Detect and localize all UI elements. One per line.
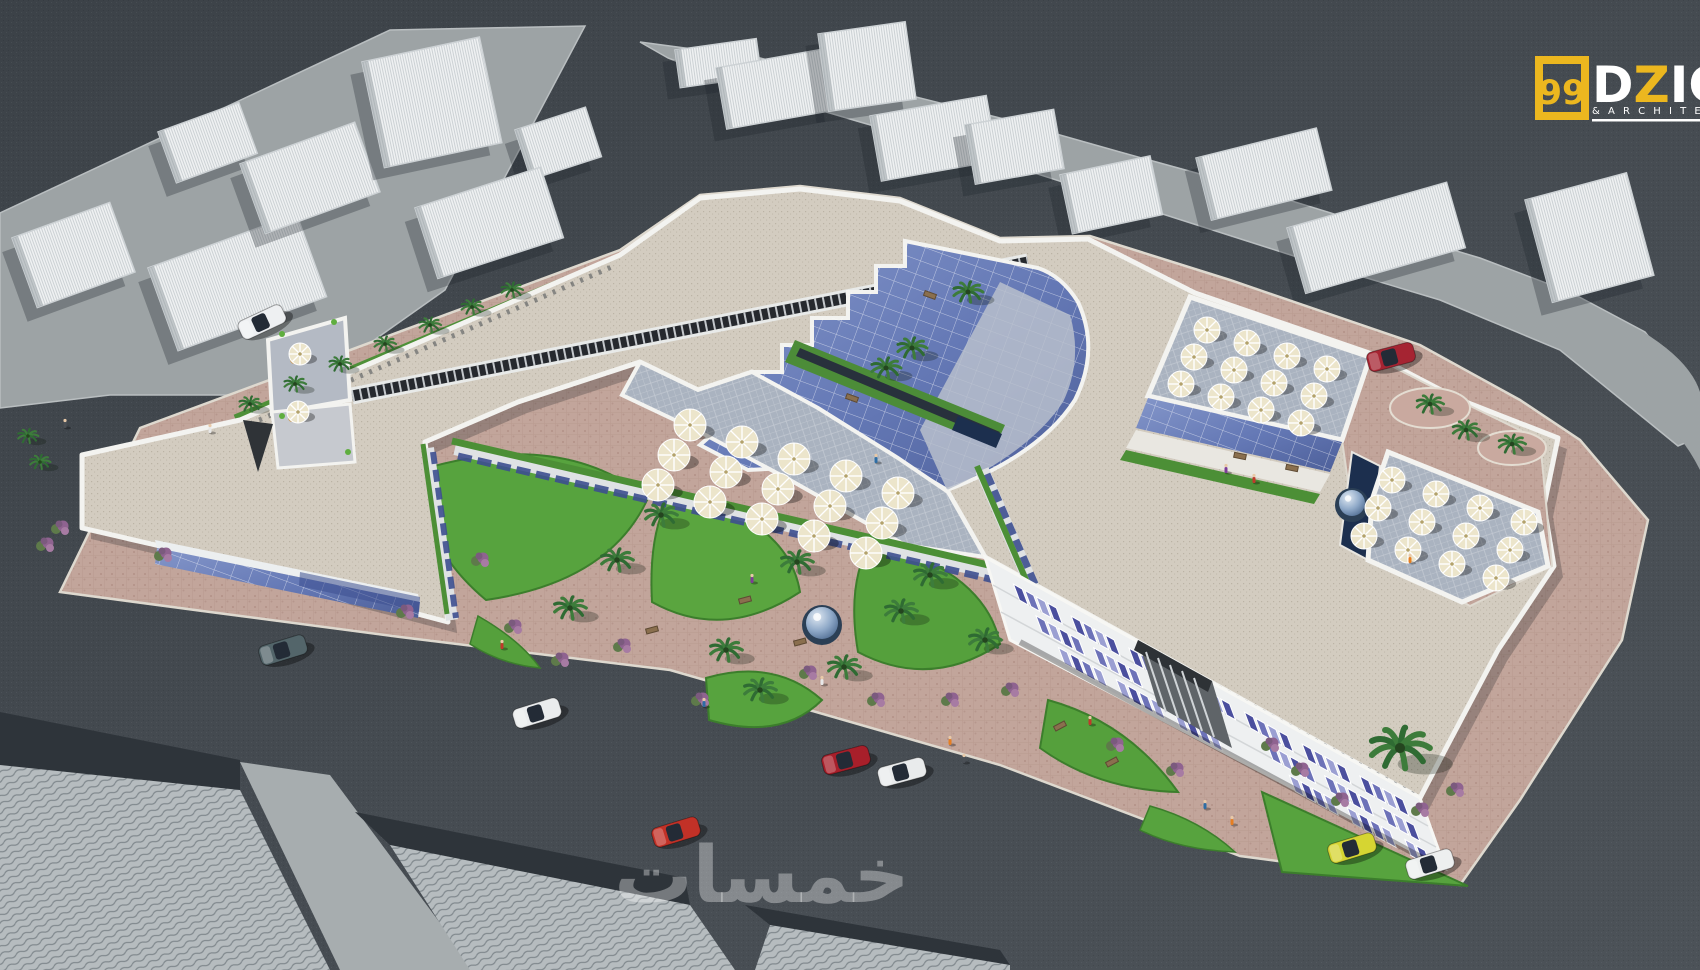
umbrella-icon <box>1181 344 1207 370</box>
umbrella-icon <box>1168 371 1194 397</box>
umbrella-icon <box>642 469 674 501</box>
umbrella-icon <box>762 473 794 505</box>
context-building <box>804 22 917 123</box>
scene-canvas: خمسات 99 DZIG & A R C H I T E <box>0 0 1700 970</box>
umbrella-icon <box>1274 343 1300 369</box>
umbrella-icon <box>1301 383 1327 409</box>
umbrella-icon <box>850 537 882 569</box>
umbrella-icon <box>1395 537 1421 563</box>
globe-fountain <box>802 605 842 645</box>
umbrella-icon <box>1365 495 1391 521</box>
umbrella-icon <box>1288 410 1314 436</box>
umbrella-icon <box>1194 317 1220 343</box>
umbrella-icon <box>1423 481 1449 507</box>
umbrella-icon <box>1453 523 1479 549</box>
umbrella-icon <box>1248 397 1274 423</box>
umbrella-icon <box>1409 509 1435 535</box>
logo-subtitle: & A R C H I T E <box>1592 106 1700 117</box>
umbrella-icon <box>287 401 309 423</box>
umbrella-icon <box>726 426 758 458</box>
umbrella-icon <box>1483 565 1509 591</box>
umbrella-icon <box>658 439 690 471</box>
umbrella-icon <box>694 486 726 518</box>
umbrella-icon <box>830 460 862 492</box>
architectural-render: خمسات 99 DZIG & A R C H I T E <box>0 0 1700 970</box>
umbrella-icon <box>814 490 846 522</box>
umbrella-icon <box>866 507 898 539</box>
umbrella-icon <box>1379 467 1405 493</box>
umbrella-icon <box>1314 356 1340 382</box>
umbrella-icon <box>1439 551 1465 577</box>
umbrella-icon <box>1511 509 1537 535</box>
globe-fountain <box>1335 488 1369 522</box>
umbrella-icon <box>1497 537 1523 563</box>
umbrella-icon <box>1351 523 1377 549</box>
umbrella-icon <box>1261 370 1287 396</box>
umbrella-icon <box>710 456 742 488</box>
umbrella-icon <box>746 503 778 535</box>
umbrella-icon <box>674 409 706 441</box>
umbrella-icon <box>1208 384 1234 410</box>
logo-underline <box>1592 119 1700 122</box>
umbrella-icon <box>882 477 914 509</box>
watermark-text: خمسات <box>614 831 910 921</box>
umbrella-icon <box>778 443 810 475</box>
umbrella-icon <box>1467 495 1493 521</box>
umbrella-icon <box>289 343 311 365</box>
logo-number: 99 <box>1538 73 1585 113</box>
umbrella-icon <box>1234 330 1260 356</box>
umbrella-icon <box>1221 357 1247 383</box>
umbrella-icon <box>798 520 830 552</box>
